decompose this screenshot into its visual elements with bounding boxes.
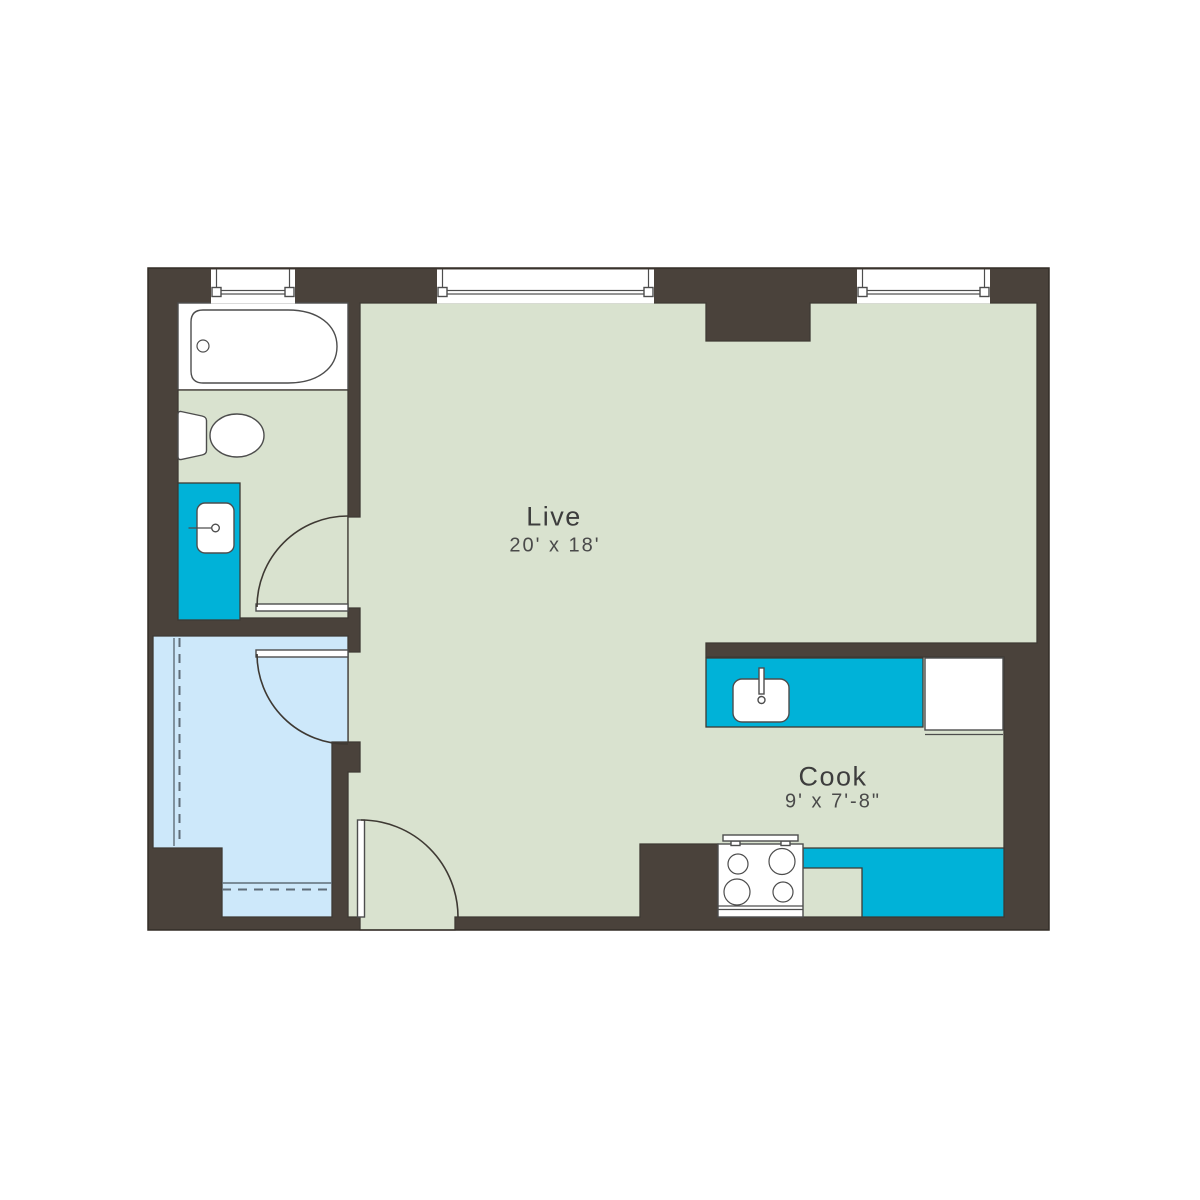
window-opening	[437, 270, 654, 304]
bathroom-door-leaf	[256, 604, 348, 611]
stove-handle	[723, 835, 798, 841]
refrigerator	[925, 658, 1003, 730]
vanity-faucet-handle	[212, 524, 220, 532]
room-dims-cook: 9' x 7'-8"	[785, 791, 881, 814]
toilet-bowl	[210, 414, 264, 457]
live-cook-floor	[348, 303, 1037, 930]
bathtub	[191, 310, 337, 383]
window-bathroom	[211, 270, 295, 304]
window-opening	[211, 270, 295, 304]
window-live-right	[857, 270, 990, 304]
floor-plan-drawing	[0, 0, 1200, 1200]
room-label-cook: Cook	[798, 762, 867, 793]
kitchen-faucet-handle	[758, 697, 765, 704]
toilet-tank	[178, 411, 207, 459]
floor-plan-canvas: Live 20' x 18' Cook 9' x 7'-8"	[0, 0, 1200, 1200]
window-live-left	[437, 270, 654, 304]
kitchen-faucet	[759, 668, 764, 694]
window-opening	[857, 270, 990, 304]
room-dims-live: 20' x 18'	[509, 535, 600, 558]
room-label-live: Live	[526, 502, 582, 533]
entry-door-leaf	[358, 820, 365, 917]
closet-door-leaf	[256, 650, 348, 657]
